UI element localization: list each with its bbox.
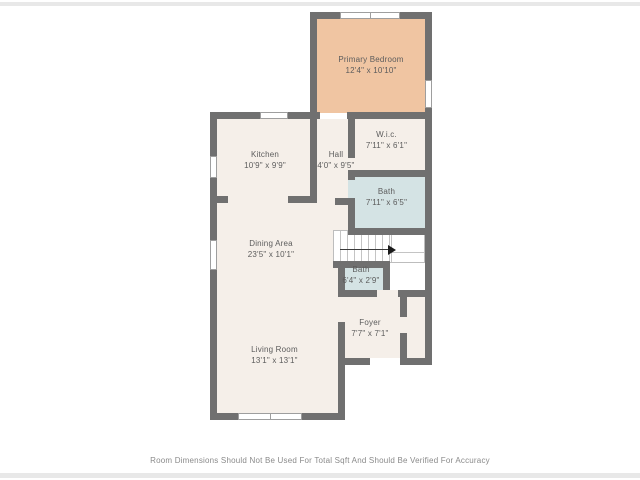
room-name: Bath bbox=[330, 264, 392, 275]
room-name: Kitchen bbox=[215, 149, 315, 160]
wall-segment bbox=[217, 196, 228, 203]
wall-segment bbox=[338, 290, 377, 297]
room-dims: 23'5" x 10'1" bbox=[212, 249, 330, 260]
wall-segment bbox=[210, 270, 217, 420]
wall-segment bbox=[348, 228, 425, 235]
page-top-divider bbox=[0, 2, 640, 6]
room-dining-living-floor bbox=[217, 196, 340, 413]
label-primary-bedroom: Primary Bedroom 12'4" x 10'10" bbox=[317, 54, 425, 76]
room-name: Hall bbox=[302, 149, 370, 160]
room-dims: 7'7" x 7'1" bbox=[330, 328, 410, 339]
room-name: W.i.c. bbox=[348, 129, 425, 140]
wall-segment bbox=[347, 112, 432, 119]
wall-segment bbox=[288, 196, 317, 203]
window-marker bbox=[260, 112, 288, 119]
window-mullion bbox=[370, 13, 371, 18]
room-name: Primary Bedroom bbox=[317, 54, 425, 65]
wall-segment bbox=[425, 12, 432, 80]
wall-segment bbox=[310, 12, 317, 119]
page-bottom-divider bbox=[0, 473, 640, 478]
floor-plan-page: Primary Bedroom 12'4" x 10'10" W.i.c. 7'… bbox=[0, 0, 640, 480]
label-bath-lower: Bath 6'4" x 2'9" bbox=[330, 264, 392, 286]
wall-segment bbox=[398, 290, 432, 297]
stair-direction-arrow-icon bbox=[388, 245, 396, 255]
label-living-room: Living Room 13'1" x 13'1" bbox=[217, 344, 332, 366]
wall-segment bbox=[288, 112, 317, 119]
room-dims: 6'4" x 2'9" bbox=[330, 275, 392, 286]
room-name: Bath bbox=[348, 186, 425, 197]
wall-segment bbox=[335, 198, 348, 205]
wall-segment bbox=[338, 358, 370, 365]
disclaimer-text: Room Dimensions Should Not Be Used For T… bbox=[0, 456, 640, 465]
wall-segment bbox=[348, 170, 355, 180]
label-bath-upper: Bath 7'11" x 6'5" bbox=[348, 186, 425, 208]
room-dims: 12'4" x 10'10" bbox=[317, 65, 425, 76]
wall-segment bbox=[425, 119, 432, 365]
window-marker bbox=[238, 413, 302, 420]
room-dims: 13'1" x 13'1" bbox=[217, 355, 332, 366]
wall-segment bbox=[210, 112, 260, 119]
room-dims: 4'0" x 9'5" bbox=[302, 160, 370, 171]
stairwell-opening bbox=[390, 263, 425, 290]
label-wic: W.i.c. 7'11" x 6'1" bbox=[348, 129, 425, 151]
room-name: Foyer bbox=[330, 317, 410, 328]
room-dims: 10'9" x 9'9" bbox=[215, 160, 315, 171]
window-marker bbox=[425, 80, 432, 108]
window-mullion bbox=[270, 414, 271, 419]
label-dining-area: Dining Area 23'5" x 10'1" bbox=[212, 238, 330, 260]
room-dims: 7'11" x 6'5" bbox=[348, 197, 425, 208]
wall-segment bbox=[210, 413, 238, 420]
room-name: Living Room bbox=[217, 344, 332, 355]
wall-segment bbox=[348, 170, 425, 177]
label-hall: Hall 4'0" x 9'5" bbox=[302, 149, 370, 171]
window-marker bbox=[340, 12, 400, 19]
room-name: Dining Area bbox=[212, 238, 330, 249]
wall-segment bbox=[400, 297, 407, 317]
stair-direction-line bbox=[340, 249, 389, 250]
label-kitchen: Kitchen 10'9" x 9'9" bbox=[215, 149, 315, 171]
wall-segment bbox=[210, 178, 217, 240]
label-foyer: Foyer 7'7" x 7'1" bbox=[330, 317, 410, 339]
stair-treads bbox=[334, 231, 391, 262]
